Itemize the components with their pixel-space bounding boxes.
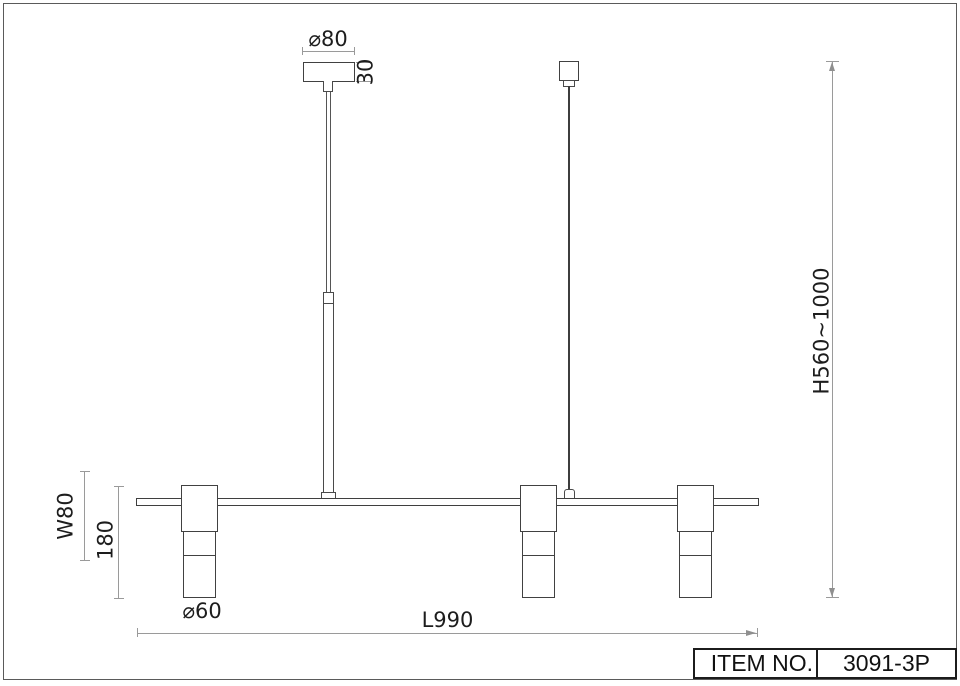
- lamp1-shade-seam: [183, 555, 216, 556]
- ceiling-canopy: [303, 62, 355, 82]
- suspension-rod-lower: [323, 303, 334, 493]
- lamp3-body: [677, 485, 714, 532]
- dim-canopy-diameter-label: ⌀80: [297, 28, 359, 51]
- dim-180-label: 180: [94, 520, 117, 560]
- lamp1-body: [181, 485, 218, 532]
- suspension-cable: [568, 86, 570, 490]
- dim-w80-tick-top: [80, 471, 90, 472]
- fixture-bar: [136, 498, 759, 506]
- dim-w80-label: W80: [54, 492, 77, 540]
- dim-height-tick-bottom: [826, 597, 839, 598]
- dim-canopy-diameter-line: [302, 51, 355, 52]
- dim-180-tick-top: [114, 486, 124, 487]
- lamp3-shade: [679, 531, 712, 598]
- lamp2-shade: [522, 531, 555, 598]
- lamp2-shade-seam: [522, 555, 555, 556]
- suspension-box: [559, 61, 579, 81]
- dim-height-label: H560~1000: [810, 268, 833, 395]
- dim-canopy-height-label: 30: [354, 59, 377, 86]
- canopy-stem: [323, 81, 333, 92]
- dim-height-arrow-bottom: [829, 588, 835, 597]
- drawing-sheet: ⌀80 30 H560~1000 W80 180 ⌀60 L990 ITEM N…: [0, 0, 960, 686]
- lamp2-body: [520, 485, 557, 532]
- dim-w80-tick-bottom: [80, 560, 90, 561]
- title-block: ITEM NO. 3091-3P: [693, 648, 957, 679]
- dim-180-tick-bottom: [114, 598, 124, 599]
- lamp1-shade: [183, 531, 216, 598]
- lamp3-shade-seam: [679, 555, 712, 556]
- dim-180-line: [118, 486, 119, 599]
- suspension-rod-upper: [326, 92, 331, 293]
- dim-shade-diameter-label: ⌀60: [172, 600, 232, 623]
- item-no-label: ITEM NO.: [695, 650, 816, 677]
- item-no-value: 3091-3P: [816, 650, 955, 677]
- dim-w80-line: [84, 471, 85, 561]
- dim-height-arrow-top: [829, 62, 835, 71]
- dim-length-line: [137, 633, 758, 634]
